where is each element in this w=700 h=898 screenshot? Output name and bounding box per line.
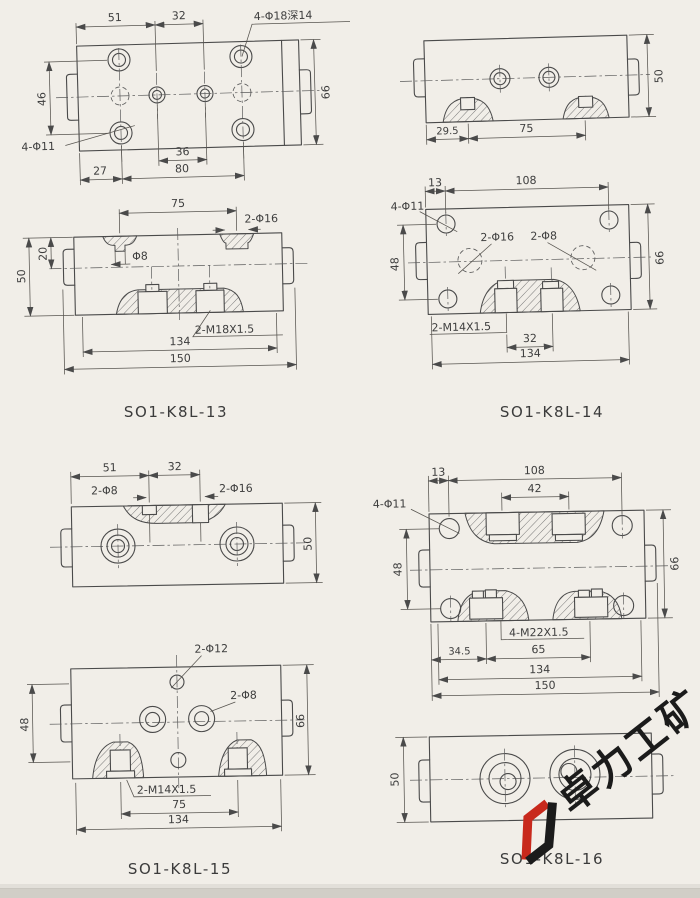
right-tab [299, 70, 311, 114]
note-2-phi12: 2-Φ12 [194, 642, 228, 656]
plug-right [574, 597, 607, 618]
model-label-16: SO1-K8L-16 [500, 850, 604, 868]
drawing-so1-k8l-13: 51 32 4-Φ18深14 46 4-Φ11 66 36 [13, 5, 354, 421]
dim-108: 108 [515, 174, 536, 188]
center-ports [139, 705, 214, 732]
note-phi8: Φ8 [132, 250, 148, 263]
plug-left [110, 750, 130, 771]
dim-42: 42 [527, 482, 541, 495]
drawing-sheet: 51 32 4-Φ18深14 46 4-Φ11 66 36 [0, 0, 700, 898]
dim-108: 108 [524, 464, 545, 477]
drawing-so1-k8l-16: 13 108 42 4-Φ11 48 66 4-M22X1.5 [372, 462, 684, 868]
d16-main-view: 13 108 42 4-Φ11 48 66 4-M22X1.5 [372, 462, 684, 702]
hatched-cutout [123, 504, 225, 524]
dim-34-5: 34.5 [448, 646, 470, 657]
scan-edge-shade [0, 884, 700, 889]
drawing-so1-k8l-15: 51 32 2-Φ8 2-Φ16 50 2-Φ12 2-Φ8 [17, 458, 323, 878]
note-thread: 4-M22X1.5 [509, 626, 569, 640]
left-tab [413, 59, 425, 97]
dim-36: 36 [175, 145, 189, 158]
model-label-14: SO1-K8L-14 [500, 403, 604, 421]
right-tab [630, 242, 642, 278]
d14-main-view: 2-Φ16 2-Φ8 13 108 4-Φ11 48 66 [386, 171, 669, 371]
dim-75: 75 [171, 197, 185, 210]
counterbore-right [220, 233, 254, 249]
dim-13: 13 [428, 176, 442, 189]
dim-66: 66 [319, 85, 332, 99]
note-4-phi11: 4-Φ11 [21, 140, 55, 154]
dim-51: 51 [103, 461, 117, 474]
dim-134: 134 [520, 347, 541, 361]
dim-20: 20 [36, 247, 49, 261]
dim-13: 13 [431, 466, 445, 479]
plug-right [541, 288, 564, 312]
note-2-phi8: 2-Φ8 [230, 689, 257, 702]
socket-right [552, 513, 585, 535]
note-corner-holes: 4-Φ18深14 [254, 9, 313, 24]
dim-48: 48 [388, 257, 401, 271]
note-2-phi16: 2-Φ16 [480, 230, 514, 244]
dim-50: 50 [388, 772, 401, 786]
dim-32: 32 [172, 9, 186, 22]
dim-66: 66 [668, 557, 681, 571]
dim-150: 150 [170, 352, 191, 365]
dim-51: 51 [108, 11, 122, 24]
left-tab [61, 529, 73, 567]
dim-134: 134 [529, 663, 550, 676]
dim-66: 66 [294, 714, 307, 728]
right-tab [282, 248, 294, 284]
watermark: 卓力工矿 [502, 681, 700, 860]
socket-left [486, 512, 519, 535]
dim-50: 50 [301, 537, 314, 551]
right-tab [627, 59, 639, 95]
catalog-page-svg: 51 32 4-Φ18深14 46 4-Φ11 66 36 [0, 0, 700, 898]
note-2-phi8: 2-Φ8 [530, 229, 557, 243]
d13-front-view: 75 2-Φ16 Φ8 20 50 2-M18X1.5 [13, 194, 309, 375]
hidden-port [458, 248, 483, 273]
dim-75: 75 [519, 122, 533, 135]
left-tab [419, 760, 431, 802]
plug-left [138, 291, 167, 314]
dim-50: 50 [15, 269, 28, 283]
dim-50: 50 [652, 69, 665, 83]
left-tab [63, 249, 75, 285]
dim-134: 134 [169, 335, 190, 348]
d14-top-view: 29.5 75 50 [399, 34, 667, 145]
note-4-phi11: 4-Φ11 [373, 497, 407, 511]
dim-48: 48 [391, 562, 404, 576]
model-label-13: SO1-K8L-13 [124, 403, 228, 421]
dim-65: 65 [531, 643, 545, 656]
left-tab [419, 550, 431, 587]
note-thread: 2-M18X1.5 [195, 322, 255, 336]
note-2-phi16: 2-Φ16 [219, 482, 253, 496]
d15-main-view: 2-Φ12 2-Φ8 2-M14X1.5 75 [17, 641, 317, 836]
note-thread: 2-M14X1.5 [137, 783, 197, 797]
dim-75: 75 [172, 798, 186, 811]
note-thread: 2-M14X1.5 [431, 320, 491, 334]
left-tab [60, 705, 72, 742]
dim-29-5: 29.5 [436, 126, 459, 138]
plug-right [228, 748, 247, 769]
right-tab [645, 545, 657, 581]
d13-top-view: 51 32 4-Φ18深14 46 4-Φ11 66 36 [18, 5, 355, 187]
dim-27: 27 [93, 164, 107, 177]
d15-top-view: 51 32 2-Φ8 2-Φ16 50 [49, 458, 323, 588]
dim-66: 66 [653, 251, 666, 265]
right-tab [281, 700, 293, 736]
left-tab [415, 242, 427, 279]
note-2-phi8: 2-Φ8 [91, 484, 118, 497]
plug-left [469, 598, 502, 620]
dim-150: 150 [534, 679, 555, 692]
watermark-brand-text: 卓力工矿 [549, 681, 700, 823]
dim-134: 134 [168, 813, 189, 826]
dim-32: 32 [523, 332, 537, 345]
plug-right [196, 290, 224, 313]
drawing-so1-k8l-14: 29.5 75 50 2-Φ16 2-Φ8 [386, 34, 669, 421]
plug-left [495, 288, 518, 313]
note-4-phi11: 4-Φ11 [390, 200, 424, 214]
corner-holes [108, 45, 255, 144]
scan-edge-bottom [0, 888, 700, 898]
dim-46: 46 [35, 92, 48, 106]
dim-48: 48 [18, 718, 31, 732]
dim-80: 80 [175, 162, 189, 175]
dim-32: 32 [168, 460, 182, 473]
model-label-15: SO1-K8L-15 [128, 860, 232, 878]
note-2-phi16: 2-Φ16 [244, 212, 278, 226]
